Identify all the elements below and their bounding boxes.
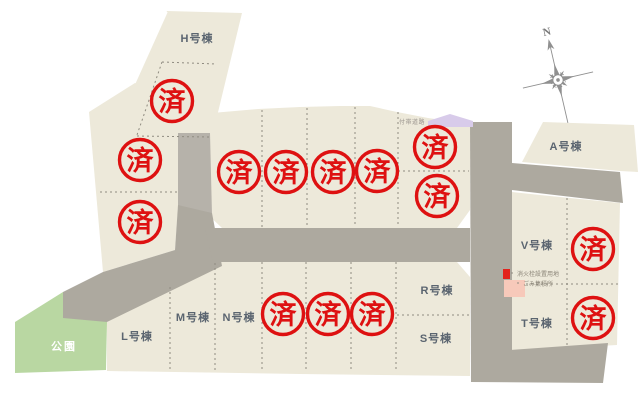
svg-text:済: 済 (424, 181, 452, 212)
svg-text:済: 済 (127, 207, 155, 238)
svg-text:済: 済 (226, 157, 254, 188)
label-park: 公園 (51, 340, 77, 353)
walkway-annotation: 付帯道路 (399, 118, 425, 126)
label-lot-s: S号棟 (420, 331, 452, 345)
north-arrow (545, 38, 554, 50)
garbage-area-marker (504, 280, 525, 297)
label-lot-a: A号棟 (550, 139, 583, 153)
svg-text:済: 済 (315, 299, 343, 330)
hydrant-marker (503, 269, 510, 279)
subdivision-map: H号棟 A号棟 V号棟 T号棟 R号棟 S号棟 M号棟 N号棟 L号棟 公園 付… (0, 0, 640, 409)
svg-text:済: 済 (159, 86, 187, 117)
label-lot-h: H号棟 (181, 31, 214, 45)
svg-text:済: 済 (359, 299, 387, 330)
svg-text:済: 済 (270, 299, 298, 330)
road-stub-north (178, 133, 212, 215)
label-lot-l: L号棟 (121, 329, 153, 343)
legend-hydrant-label: 消火栓設置用地 (517, 270, 559, 278)
north-label: N (542, 26, 552, 39)
label-lot-r: R号棟 (421, 283, 454, 297)
road-main-vertical (470, 122, 512, 382)
svg-text:済: 済 (580, 234, 608, 265)
label-lot-v: V号棟 (521, 238, 553, 252)
svg-text:済: 済 (580, 303, 608, 334)
label-lot-m: M号棟 (176, 310, 210, 324)
label-lot-n: N号棟 (223, 310, 256, 324)
legend-garbage-label: ごみ集積所 (523, 280, 553, 288)
site-plan-canvas: H号棟 A号棟 V号棟 T号棟 R号棟 S号棟 M号棟 N号棟 L号棟 公園 付… (0, 0, 640, 409)
svg-text:済: 済 (422, 132, 450, 163)
svg-text:済: 済 (320, 157, 348, 188)
label-lot-t: T号棟 (521, 316, 553, 330)
svg-text:済: 済 (273, 157, 301, 188)
compass-rose: N (511, 18, 603, 131)
svg-text:済: 済 (127, 145, 155, 176)
svg-text:済: 済 (364, 156, 392, 187)
road-main-horizontal (205, 228, 470, 262)
